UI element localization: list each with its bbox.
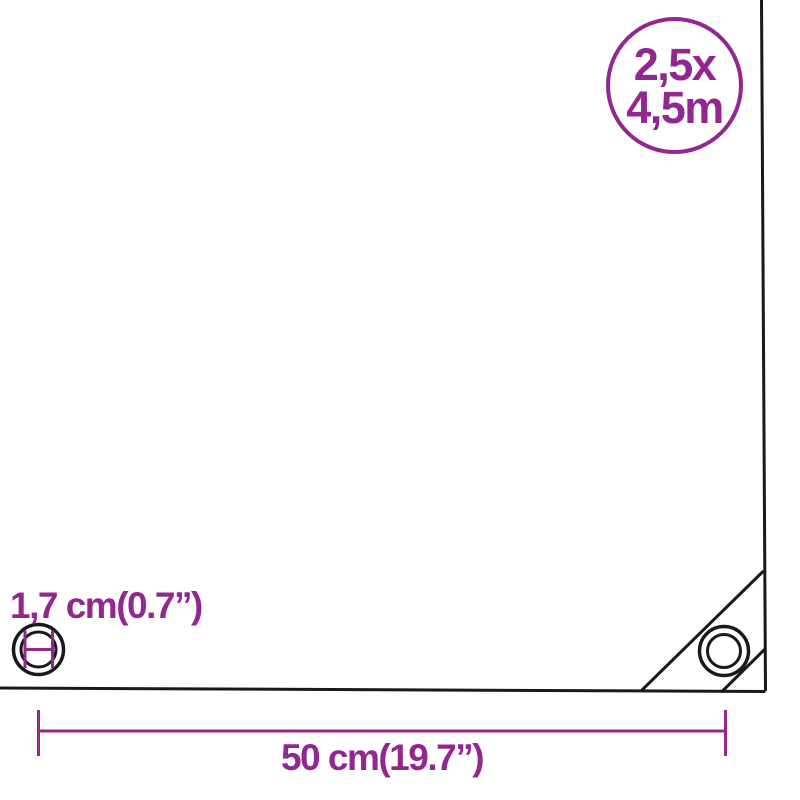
size-badge-width: 2,5x: [634, 44, 716, 87]
corner-patch-diagonal: [641, 571, 764, 691]
grommet-spacing-label: 50 cm(19.7”): [232, 737, 532, 779]
eyelet-diameter-icon: [14, 625, 64, 675]
tarp-bottom-edge: [0, 688, 766, 692]
tarpaulin-corner-diagram: 2,5x 4,5m 1,7 cm(0.7”) 50 cm(19.7”): [0, 0, 800, 800]
eyelet-diameter-label: 1,7 cm(0.7”): [10, 585, 202, 627]
tarp-right-edge: [762, 0, 766, 691]
size-badge: 2,5x 4,5m: [606, 17, 743, 154]
size-badge-length: 4,5m: [626, 87, 723, 130]
corner-grommet-icon: [700, 627, 749, 676]
